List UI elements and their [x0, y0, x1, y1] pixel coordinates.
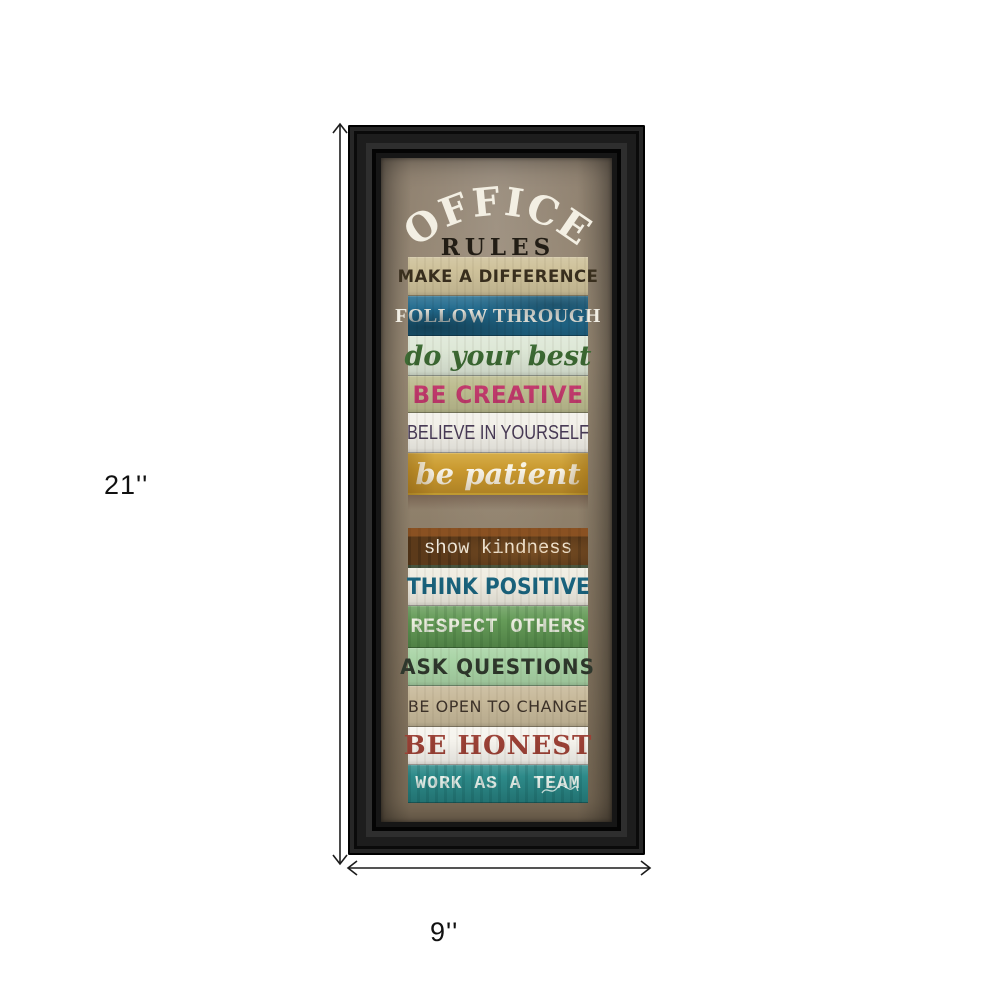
plank-text: FOLLOW THROUGH: [395, 305, 601, 328]
plank-text: BELIEVE IN YOURSELF: [407, 422, 589, 445]
plank-think-positive: THINK POSITIVE: [408, 568, 588, 606]
plank-show-kindness: show kindness: [408, 528, 588, 568]
plank-text: do your best: [405, 341, 592, 372]
plank-gap: [408, 495, 588, 528]
plank-text: BE OPEN TO CHANGE: [408, 697, 588, 716]
plank-be-patient: be patient: [408, 453, 588, 495]
plank-text: ASK QUESTIONS: [401, 655, 596, 679]
plank-text: show kindness: [424, 537, 572, 559]
width-dimension-label: 9'': [430, 917, 458, 948]
plank-be-honest: BE HONEST: [408, 727, 588, 765]
plank-be-creative: BE CREATIVE: [408, 376, 588, 413]
height-dimension-label: 21'': [104, 470, 148, 501]
plank-text: be patient: [415, 457, 580, 491]
plank-make-a-difference: MAKE A DIFFERENCE: [408, 257, 588, 296]
plank-believe-in-yourself: BELIEVE IN YOURSELF: [408, 413, 588, 453]
artist-signature: [540, 783, 580, 797]
plank-be-open-to-change: BE OPEN TO CHANGE: [408, 686, 588, 727]
plank-text: BE CREATIVE: [413, 381, 584, 409]
plank-text: RESPECT OTHERS: [410, 616, 585, 639]
plank-ask-questions: ASK QUESTIONS: [408, 648, 588, 686]
plank-text: BE HONEST: [404, 731, 593, 761]
plank-follow-through: FOLLOW THROUGH: [408, 296, 588, 336]
plank-respect-others: RESPECT OTHERS: [408, 606, 588, 648]
width-dimension-arrow: [340, 854, 658, 882]
plank-do-your-best: do your best: [408, 336, 588, 376]
plank-text: THINK POSITIVE: [407, 575, 590, 600]
product-dimension-image: 21'' 9'' OFFICE RULES MAKE A DIFFERENCE …: [0, 0, 1000, 1000]
plank-text: MAKE A DIFFERENCE: [398, 267, 599, 286]
plank-list: MAKE A DIFFERENCE FOLLOW THROUGH do your…: [408, 257, 588, 803]
picture-frame: OFFICE RULES MAKE A DIFFERENCE FOLLOW TH…: [348, 125, 645, 855]
artwork-print: OFFICE RULES MAKE A DIFFERENCE FOLLOW TH…: [381, 158, 612, 822]
